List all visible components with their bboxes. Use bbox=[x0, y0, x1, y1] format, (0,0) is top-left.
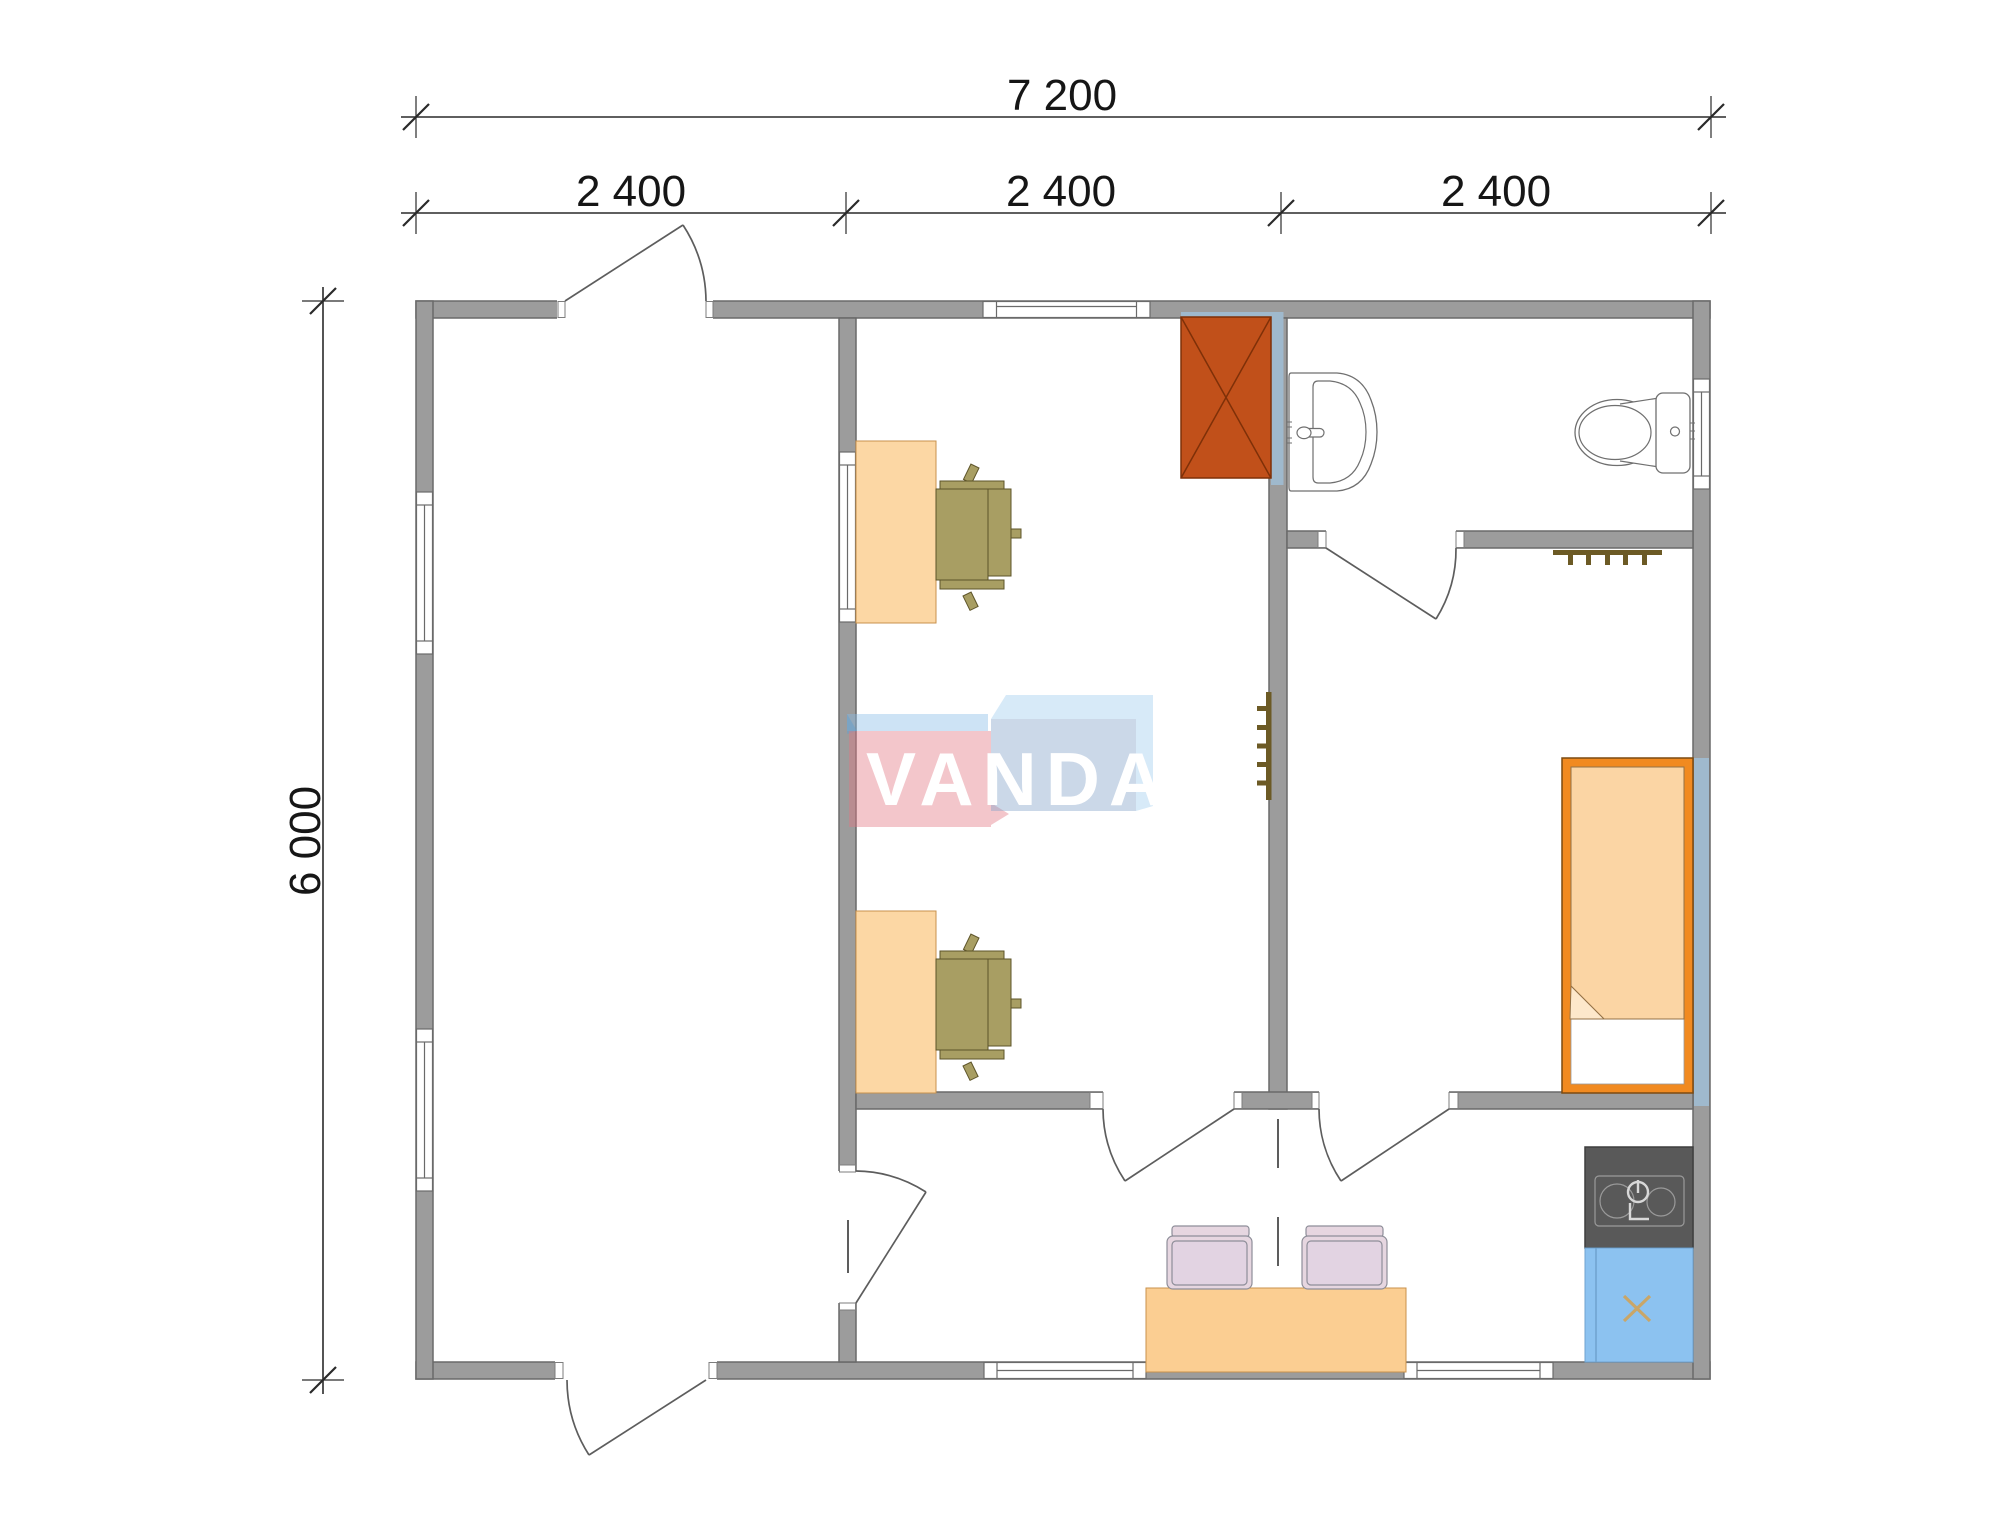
svg-text:2 400: 2 400 bbox=[1006, 167, 1116, 216]
svg-text:6 000: 6 000 bbox=[281, 786, 330, 896]
svg-text:2 400: 2 400 bbox=[576, 167, 686, 216]
svg-text:7 200: 7 200 bbox=[1007, 71, 1117, 120]
svg-text:VANDA: VANDA bbox=[866, 737, 1172, 821]
svg-text:2 400: 2 400 bbox=[1441, 167, 1551, 216]
